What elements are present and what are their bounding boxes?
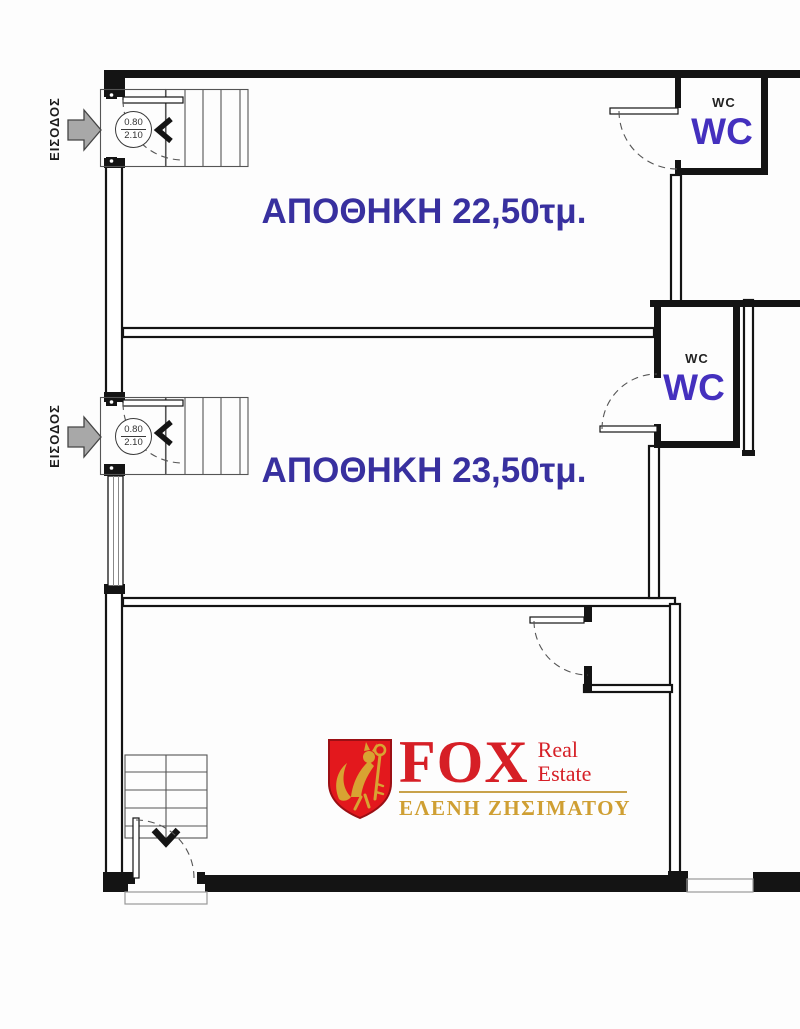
door-wc-1 [610, 108, 678, 169]
entrance-1-label: ΕΙΣΟΔΟΣ [47, 84, 63, 174]
wc-1-small-label: WC [694, 95, 754, 110]
fox-holding-key-shield-icon [325, 737, 395, 821]
logo-subtitle-line1: Real [538, 737, 578, 762]
logo-subtitle-line2: Estate [538, 761, 592, 786]
stairs-basement [125, 755, 207, 878]
storage-room-1-label: ΑΠΟΘΗΚΗ 22,50τμ. [174, 192, 674, 232]
floor-plan: ΕΙΣΟΔΟΣ ΕΙΣΟΔΟΣ 0.80 2.10 0.80 2.10 ΑΠΟΘ… [0, 0, 800, 1029]
fox-real-estate-logo: FOX Real Estate ΕΛΕΝΗ ΖΗΣΙΜΑΤΟΥ [325, 737, 635, 825]
logo-brand-text: FOX [399, 737, 529, 787]
door-width-value: 0.80 [121, 117, 146, 130]
logo-subtitle: Real Estate [538, 738, 592, 786]
entrance-2-arrow-icon [68, 417, 101, 457]
floorplan-linework [0, 0, 800, 1029]
logo-agent-name: ΕΛΕΝΗ ΖΗΣΙΜΑΤΟΥ [399, 796, 627, 821]
entrance-2-label: ΕΙΣΟΔΟΣ [47, 391, 63, 481]
closet-walls [584, 606, 592, 692]
door-height-value: 2.10 [124, 130, 143, 142]
entrance-1-arrow-icon [68, 110, 101, 150]
door-closet [530, 617, 588, 675]
entrance-arrows [68, 110, 101, 457]
window-left-wall [108, 476, 123, 586]
entrance-1-door-dimensions: 0.80 2.10 [115, 111, 152, 148]
wc-2-label: WC [644, 367, 744, 409]
wc-2-small-label: WC [667, 351, 727, 366]
logo-divider [399, 791, 627, 793]
door-height-value: 2.10 [124, 437, 143, 449]
wc-1-label: WC [672, 111, 772, 153]
entrance-2-door-dimensions: 0.80 2.10 [115, 418, 152, 455]
storage-room-2-label: ΑΠΟΘΗΚΗ 23,50τμ. [174, 451, 674, 491]
door-width-value: 0.80 [121, 424, 146, 437]
